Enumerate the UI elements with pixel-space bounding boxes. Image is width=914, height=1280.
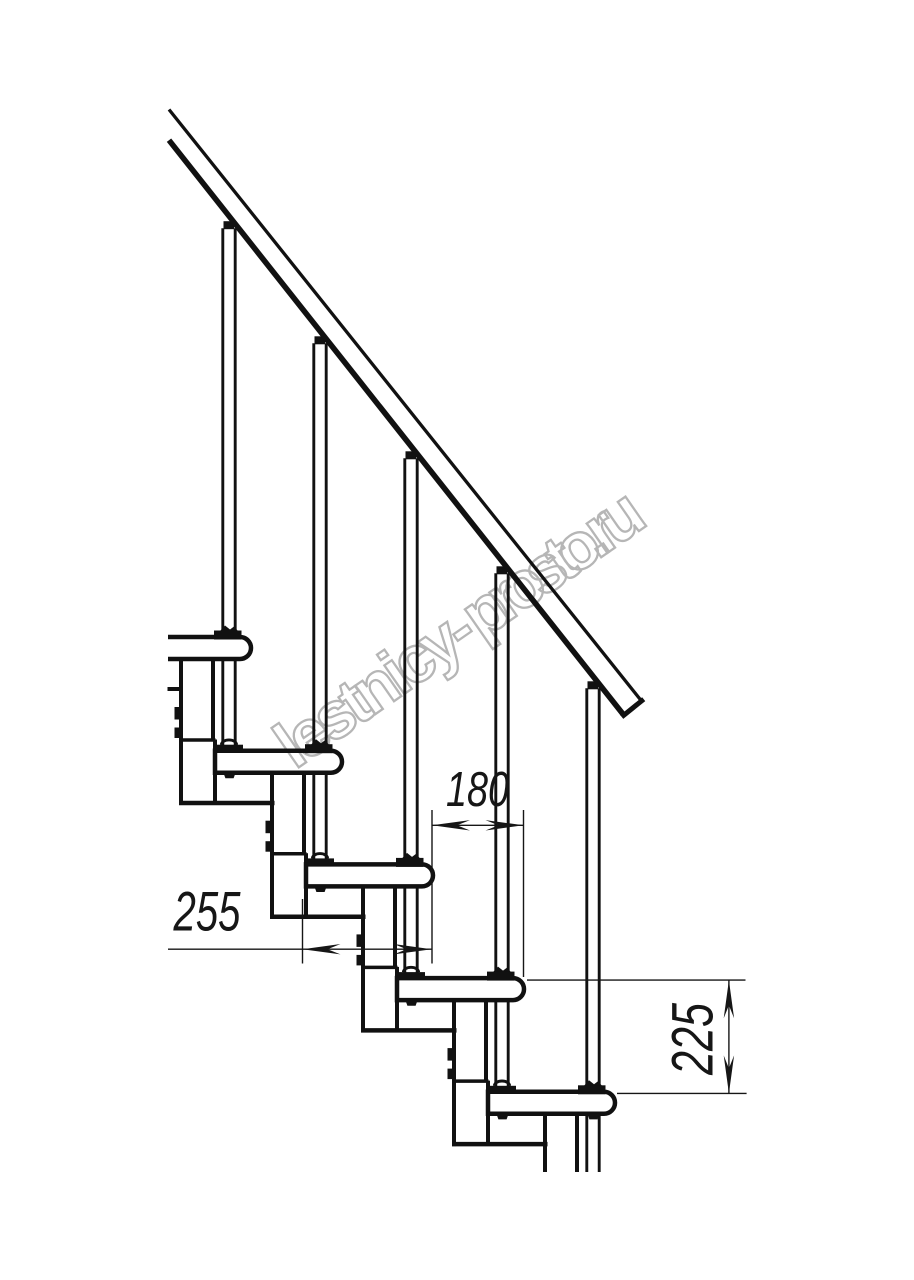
svg-text:255: 255: [173, 880, 241, 943]
svg-text:180: 180: [446, 763, 509, 817]
svg-text:225: 225: [660, 1003, 725, 1076]
